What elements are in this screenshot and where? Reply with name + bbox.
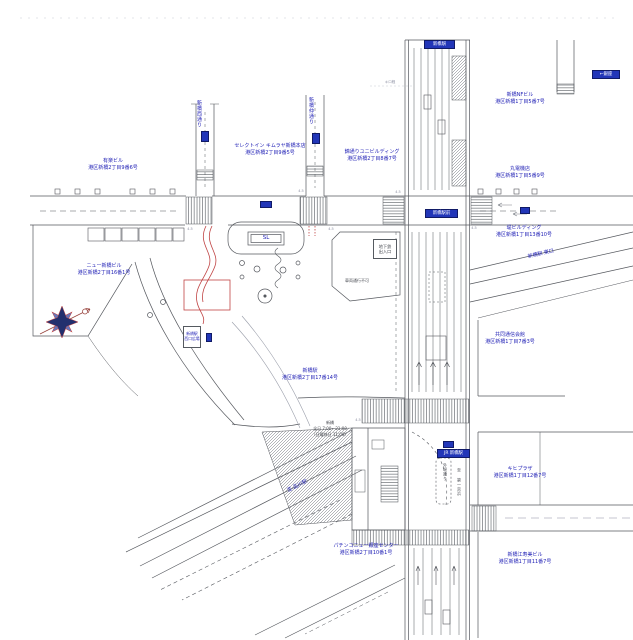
label-street-nishi-dori: 新橋西通り [196, 100, 201, 128]
storefront-marks [55, 189, 537, 241]
west-plaza-signbox: 新橋駅 西口広場 [183, 326, 201, 348]
label-street-naka-dori: 新橋仲通り [308, 97, 313, 125]
ekimae-intersection-badge: 新橋駅前 [425, 209, 458, 218]
bus-loop-red [184, 226, 315, 324]
dimension-tick: 4.5 [187, 227, 193, 232]
sl-plaza [148, 222, 305, 318]
road-sign-marker-icon [260, 201, 272, 208]
dimension-tick: 4.5 [328, 227, 334, 232]
label-kyodo-building: 共同通信会館 港区新橋1丁目7番3号 [485, 332, 535, 347]
road-sign-marker-icon [520, 207, 530, 214]
jr-logo-icon [443, 441, 454, 448]
label-kilo-post: キロ程 [385, 80, 396, 85]
label-select-inn: セレクトイン キムラヤ新橋本店 港区新橋2丁目9番5号 [234, 143, 305, 158]
road-sign-marker-icon [312, 133, 320, 144]
label-nf-building: 新橋NFビル 港区新橋1丁目5番7号 [495, 92, 545, 107]
dimension-tick: 4.5 [298, 189, 304, 194]
road-sign-marker-icon [206, 333, 212, 342]
label-tsutsumi-building: 堤ビルディング 港区新橋1丁目13番10号 [496, 225, 552, 240]
station-building [352, 428, 405, 530]
center-block [232, 232, 405, 427]
road-sign-marker-icon [201, 131, 209, 142]
label-sl-square: SL [263, 235, 270, 243]
dimension-tick: 4.5 [471, 226, 477, 231]
label-street-sotobori: 外堀通り [443, 463, 447, 481]
west-plaza [33, 225, 310, 428]
label-vehicle-ban: 車両通行不可 [345, 278, 369, 284]
label-hours-sign: 新橋 全日 7:00～21:00 （日曜休日 11:00） [312, 420, 349, 437]
label-denki-store: 丸電機店 港区新橋1丁目5番9号 [495, 166, 545, 181]
label-new-shinbashi-building: ニュー新橋ビル 港区新橋2丁目16番1号 [78, 263, 131, 278]
label-yuraku-building: 有楽ビル 港区新橋2丁目9番6号 [88, 158, 138, 173]
label-kihi-plaza: キヒプラザ 港区新橋1丁目12番7号 [494, 466, 547, 481]
label-pachinko-center: パチンコニュー銀座センター 港区新橋2丁目10番1号 [333, 543, 398, 558]
jr-station-badge: JR 新橋駅 [437, 449, 470, 458]
to-ginza-badge: ←銀座 [592, 70, 620, 79]
label-nishiki-building: 錦通りユニビルディング 港区新橋2丁目8番7号 [345, 149, 400, 164]
map-container[interactable]: 有楽ビル 港区新橋2丁目9番6号 セレクトイン キムラヤ新橋本店 港区新橋2丁目… [0, 0, 633, 640]
station-north-badge: 新橋駅 [424, 40, 455, 49]
street-nishi-dori [186, 104, 219, 224]
frame-guides [20, 18, 615, 86]
label-ezumi-building: 新橋江寿美ビル 港区新橋1丁目11番7号 [499, 552, 552, 567]
subway-entrance-signbox: 地下鉄 出入口 [373, 239, 397, 259]
dimension-tick: 4.5 [395, 190, 401, 195]
dimension-tick: 4.5 [355, 418, 361, 423]
label-shinbashi-station: 新橋駅 港区新橋2丁目17番14号 [282, 368, 338, 383]
label-street-daiichi-keihin: 至 第一京浜 [457, 468, 461, 496]
main-road [30, 196, 633, 225]
